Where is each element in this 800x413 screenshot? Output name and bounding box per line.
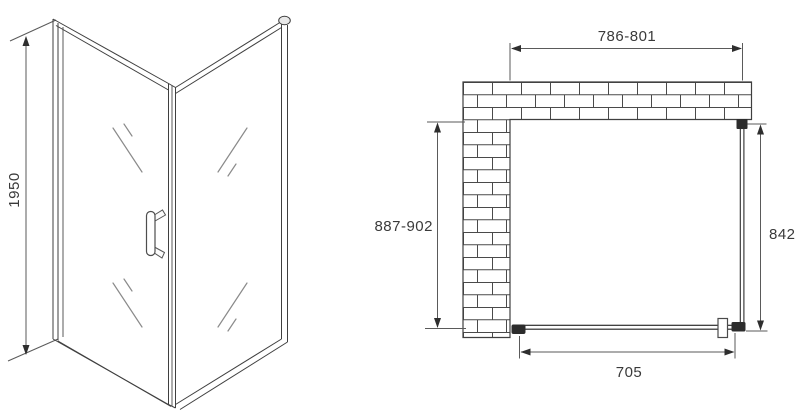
handle-bar [147, 212, 156, 256]
door-frame-bottom-inner [58, 341, 171, 407]
arrowhead-down [757, 321, 764, 331]
front-height-dimension: 1950 [6, 20, 58, 361]
right-panel-label: 842 [769, 226, 796, 243]
extension-line-top [10, 20, 56, 41]
glass-reflection-mark [124, 279, 132, 291]
side-frame-top-outer [176, 22, 282, 88]
shower-enclosure-drawing: 1950 [0, 0, 800, 413]
side-frame-bottom-inner [176, 339, 282, 405]
door-handle [147, 210, 166, 258]
left-depth-label: 887-902 [374, 218, 433, 235]
door-width-label: 705 [616, 364, 643, 381]
side-frame-top-inner [176, 28, 282, 94]
wall-bracket [737, 119, 748, 129]
top-width-label: 786-801 [598, 28, 657, 45]
front-view: 1950 [6, 16, 290, 409]
arrowhead-right [725, 349, 735, 356]
glass-reflection-mark [113, 283, 142, 327]
extension-line-bottom [8, 339, 58, 361]
plan-left-depth-dimension: 887-902 [374, 122, 466, 329]
corner-post [169, 84, 176, 409]
height-dimension-label: 1950 [6, 172, 23, 207]
door-frame-top-outer [53, 19, 169, 84]
door-hinge [512, 325, 526, 335]
arrowhead-up [757, 125, 764, 135]
corner-connector [732, 322, 746, 332]
arrowhead-down [434, 318, 441, 328]
side-frame-bottom-outer [180, 342, 288, 410]
plan-top-width-dimension: 786-801 [510, 28, 743, 81]
brick-wall [463, 82, 752, 338]
door-handle-plan [718, 319, 728, 338]
glass-reflection-mark [228, 319, 236, 331]
glass-reflection-mark [113, 128, 142, 172]
side-panel [176, 16, 291, 409]
door-glass-plan [513, 325, 744, 329]
plan-view: 786-801 887-902 842 [374, 28, 795, 381]
arrowhead-up [23, 36, 30, 46]
side-post-top-cap [279, 16, 291, 24]
arrowhead-down [23, 345, 30, 355]
technical-drawing-page: 1950 [0, 0, 800, 413]
fixed-panel-glass-plan [740, 129, 744, 325]
glass-reflection-mark [228, 164, 236, 176]
glass-reflection-mark [218, 128, 247, 172]
arrowhead-up [434, 123, 441, 133]
glass-reflection-mark [218, 283, 247, 327]
arrowhead-right [732, 45, 742, 52]
arrowhead-left [511, 45, 521, 52]
plan-door-width-dimension: 705 [520, 333, 736, 381]
door-frame-top-inner [56, 26, 169, 91]
plan-right-panel-dimension: 842 [744, 124, 796, 331]
arrowhead-left [521, 349, 531, 356]
glass-reflection-mark [124, 124, 132, 136]
